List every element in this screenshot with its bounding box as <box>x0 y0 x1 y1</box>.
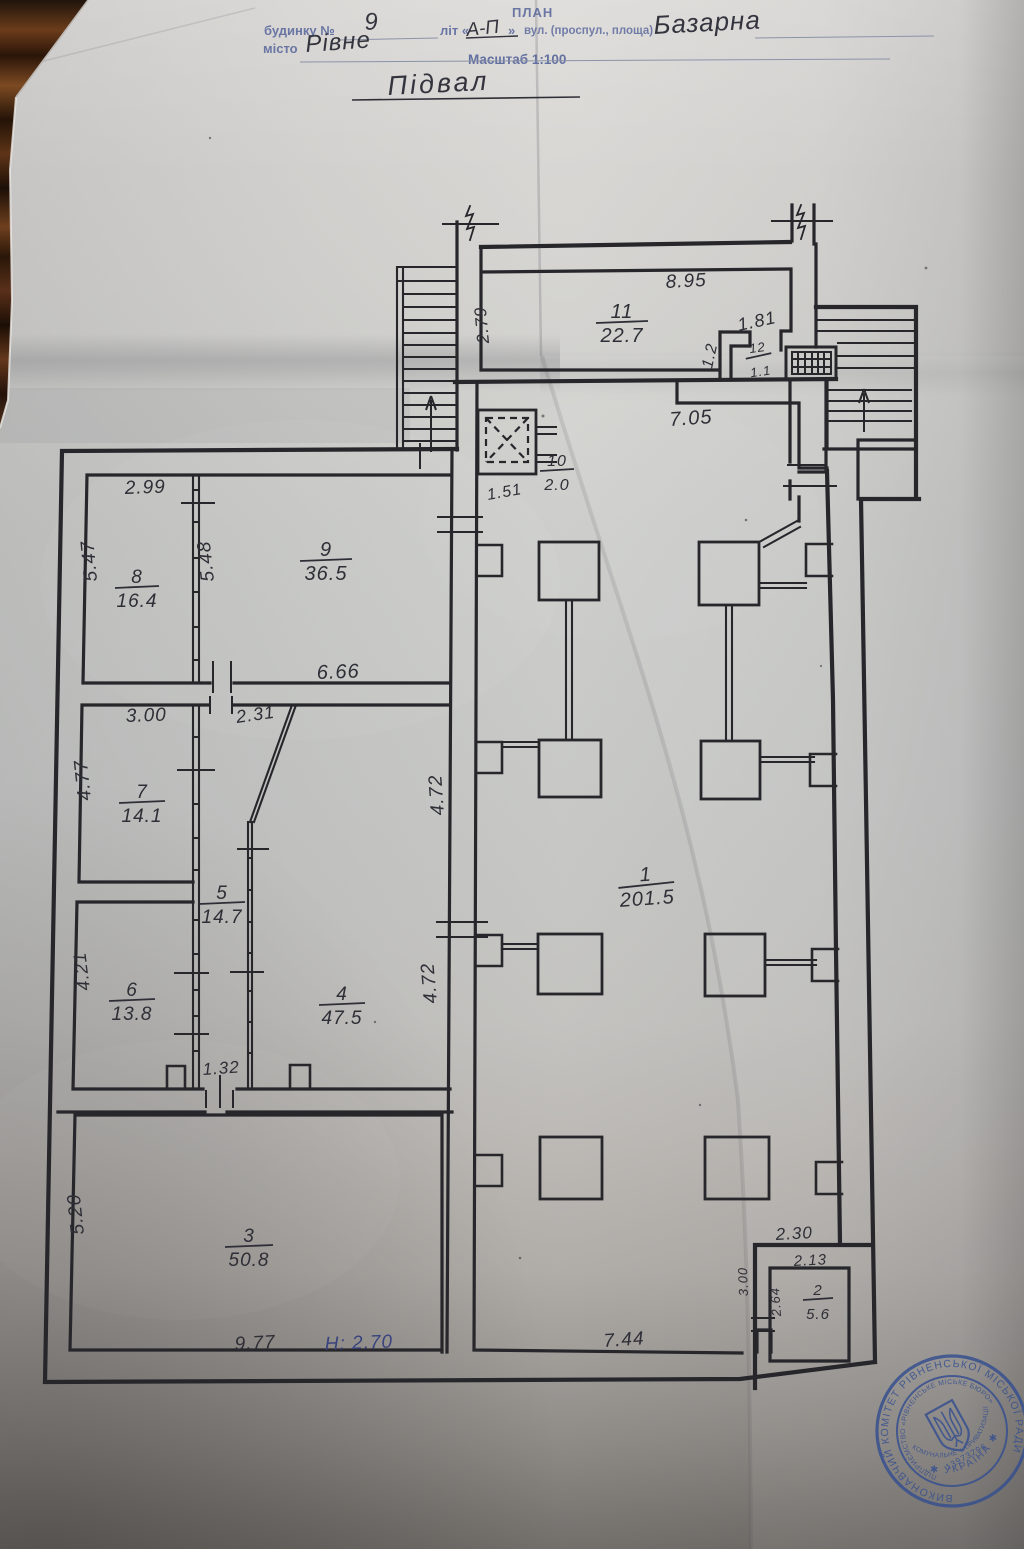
svg-text:7: 7 <box>136 782 148 803</box>
svg-text:8: 8 <box>131 567 143 588</box>
svg-text:3.00: 3.00 <box>735 1267 751 1297</box>
svg-text:1: 1 <box>639 864 653 887</box>
svg-text:2: 2 <box>812 1282 822 1299</box>
svg-text:14.7: 14.7 <box>202 907 243 928</box>
svg-text:7.44: 7.44 <box>603 1328 645 1352</box>
svg-text:5.48: 5.48 <box>194 540 219 583</box>
svg-text:11: 11 <box>611 301 634 323</box>
svg-text:ПЛАН: ПЛАН <box>512 5 553 20</box>
svg-text:2.13: 2.13 <box>792 1251 827 1270</box>
svg-text:7.05: 7.05 <box>669 406 713 431</box>
svg-text:3.00: 3.00 <box>125 705 167 727</box>
svg-text:9: 9 <box>320 539 332 561</box>
svg-text:2.30: 2.30 <box>774 1223 813 1244</box>
svg-text:4.77: 4.77 <box>71 758 96 801</box>
svg-text:5.20: 5.20 <box>64 1193 89 1236</box>
svg-text:2.99: 2.99 <box>123 477 166 499</box>
svg-text:Базарна: Базарна <box>653 4 762 40</box>
svg-text:13.8: 13.8 <box>112 1004 153 1025</box>
svg-text:2.64: 2.64 <box>767 1287 784 1318</box>
svg-text:9.77: 9.77 <box>234 1332 276 1355</box>
svg-text:H: 2.70: H: 2.70 <box>324 1332 393 1355</box>
svg-text:Рівне: Рівне <box>305 26 372 57</box>
svg-text:2.79: 2.79 <box>471 306 493 346</box>
svg-text:вул. (проспул., площа): вул. (проспул., площа) <box>524 25 653 37</box>
svg-text:36.5: 36.5 <box>305 563 348 585</box>
svg-text:4: 4 <box>336 984 348 1005</box>
svg-text:Підвал: Підвал <box>387 66 490 101</box>
svg-text:Масштаб 1:100: Масштаб 1:100 <box>468 52 566 67</box>
svg-text:47.5: 47.5 <box>322 1008 363 1029</box>
svg-text:6.66: 6.66 <box>316 661 360 684</box>
svg-text:3: 3 <box>243 1226 255 1247</box>
svg-text:201.5: 201.5 <box>618 886 675 912</box>
svg-text:місто: місто <box>263 41 298 56</box>
svg-text:літ «: літ « <box>440 23 469 38</box>
svg-text:4.72: 4.72 <box>425 774 449 816</box>
svg-text:22.7: 22.7 <box>600 325 644 347</box>
svg-text:1.32: 1.32 <box>202 1057 240 1079</box>
svg-text:5.47: 5.47 <box>77 539 102 582</box>
svg-text:50.8: 50.8 <box>229 1250 270 1271</box>
svg-text:1.1: 1.1 <box>749 362 772 380</box>
svg-text:14.1: 14.1 <box>122 806 163 827</box>
svg-text:12: 12 <box>748 339 766 356</box>
svg-text:2.0: 2.0 <box>543 477 569 494</box>
svg-text:5: 5 <box>216 883 228 904</box>
svg-text:8.95: 8.95 <box>665 270 707 293</box>
svg-text:6: 6 <box>126 980 138 1001</box>
svg-text:10: 10 <box>547 453 567 470</box>
svg-text:16.4: 16.4 <box>117 591 158 612</box>
svg-text:4.72: 4.72 <box>417 962 441 1005</box>
svg-text:5.6: 5.6 <box>806 1306 830 1323</box>
